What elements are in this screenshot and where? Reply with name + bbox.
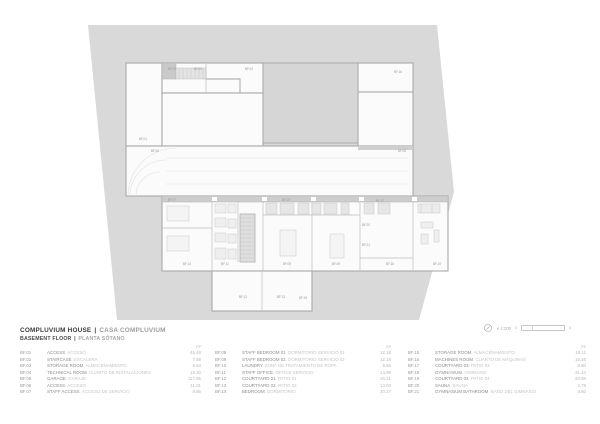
legend-rows: BF.01ACCESS. ACCESO45.49BF.02STAIRCASE. … (20, 350, 201, 396)
plan-label-BF.17: BF.17 (376, 199, 384, 203)
title-separator: | (93, 327, 97, 334)
room-name: STAFF ACCESS. ACCESO DE SERVICIO (47, 389, 169, 396)
subtitle-es: PLANTA SÓTANO (78, 336, 124, 342)
plan-label-BF.15: BF.15 (433, 262, 441, 266)
legend-column-3: m² BF.15STORAGE ROOM. ALMACENAMIENTO18.1… (408, 343, 586, 396)
legend-row: BF.07STAFF ACCESS. ACCESO DE SERVICIO8.8… (20, 389, 201, 396)
legend-row: BF.14BEDROOM. DORMITORIO20.27 (215, 389, 391, 396)
plan-label-BF.16: BF.16 (394, 70, 402, 74)
plan-label-BF.14: BF.14 (183, 262, 191, 266)
plan-label-BF.11: BF.11 (221, 262, 229, 266)
scale-label: e 1:200 (497, 326, 511, 331)
sheet-subtitle: BASEMENT FLOOR | PLANTA SÓTANO (20, 336, 166, 343)
drawing-sheet: BF.01BF.02BF.03BF.04BF.16BF.05BF.06BF.07… (0, 0, 600, 424)
plan-label-BF.02: BF.02 (168, 67, 176, 71)
plan-label-BF.03: BF.03 (194, 67, 202, 71)
plan-label-BF.09: BF.09 (332, 262, 340, 266)
plan-label-BF.21: BF.21 (362, 243, 370, 247)
plan-label-BF.20: BF.20 (362, 223, 370, 227)
plan-label-BF.01: BF.01 (139, 137, 147, 141)
legend-rows: BF.15STORAGE ROOM. ALMACENAMIENTO18.11BF… (408, 350, 586, 396)
plan-label-BF.19: BF.19 (299, 296, 307, 300)
plan-label-BF.05: BF.05 (151, 149, 159, 153)
scale-block: e 1:200 0 5 (483, 323, 571, 333)
title-es: CASA COMPLUVIUM (99, 327, 165, 334)
legend-row: BF.21GYMNASIUM BATHROOM. BAÑO DEL GIMNAS… (408, 389, 586, 396)
room-name: BEDROOM. DORMITORIO (242, 389, 359, 396)
room-name: GYMNASIUM BATHROOM. BAÑO DEL GIMNASIO (435, 389, 554, 396)
room-code: BF.07 (20, 389, 47, 396)
plan-label-BF.18: BF.18 (386, 262, 394, 266)
legend-rows: BF.08STAFF BEDROOM 01. DORMITORIO SERVIC… (215, 350, 391, 396)
area-unit-header: m² (408, 343, 586, 350)
plan-label-BF.06: BF.06 (398, 149, 406, 153)
lower-band-wall (162, 196, 448, 202)
stair-shaft (240, 214, 255, 262)
scale-bar-end: 5 (569, 326, 571, 330)
area-unit-header: m² (20, 343, 201, 350)
legend-column-2: m² BF.08STAFF BEDROOM 01. DORMITORIO SER… (215, 343, 391, 396)
room-code: BF.14 (215, 389, 242, 396)
area-unit-header: m² (215, 343, 391, 350)
plan-label-BF.13: BF.13 (277, 295, 285, 299)
legend-column-1: m² BF.01ACCESS. ACCESO45.49BF.02STAIRCAS… (20, 343, 201, 396)
room-area: 4.50 (554, 389, 586, 396)
title-block: COMPLUVIUM HOUSE | CASA COMPLUVIUM BASEM… (20, 327, 166, 343)
north-arrow-icon (483, 323, 493, 333)
plan-label-BF.04: BF.04 (245, 67, 253, 71)
room-area: 20.27 (359, 389, 391, 396)
sheet-title: COMPLUVIUM HOUSE | CASA COMPLUVIUM (20, 327, 166, 335)
subtitle-en: BASEMENT FLOOR (20, 336, 72, 342)
central-courtyard (263, 63, 358, 143)
floor-plan: BF.01BF.02BF.03BF.04BF.16BF.05BF.06BF.07… (0, 0, 600, 330)
plan-label-BF.07: BF.07 (168, 198, 176, 202)
title-en: COMPLUVIUM HOUSE (20, 327, 91, 334)
scale-bar (521, 325, 565, 331)
scale-bar-start: 0 (515, 326, 517, 330)
plan-label-BF.10: BF.10 (282, 198, 290, 202)
subtitle-separator: | (73, 336, 77, 342)
plan-label-BF.12: BF.12 (239, 295, 247, 299)
room-area: 8.86 (169, 389, 201, 396)
plan-label-BF.08: BF.08 (283, 262, 291, 266)
room-code: BF.21 (408, 389, 435, 396)
